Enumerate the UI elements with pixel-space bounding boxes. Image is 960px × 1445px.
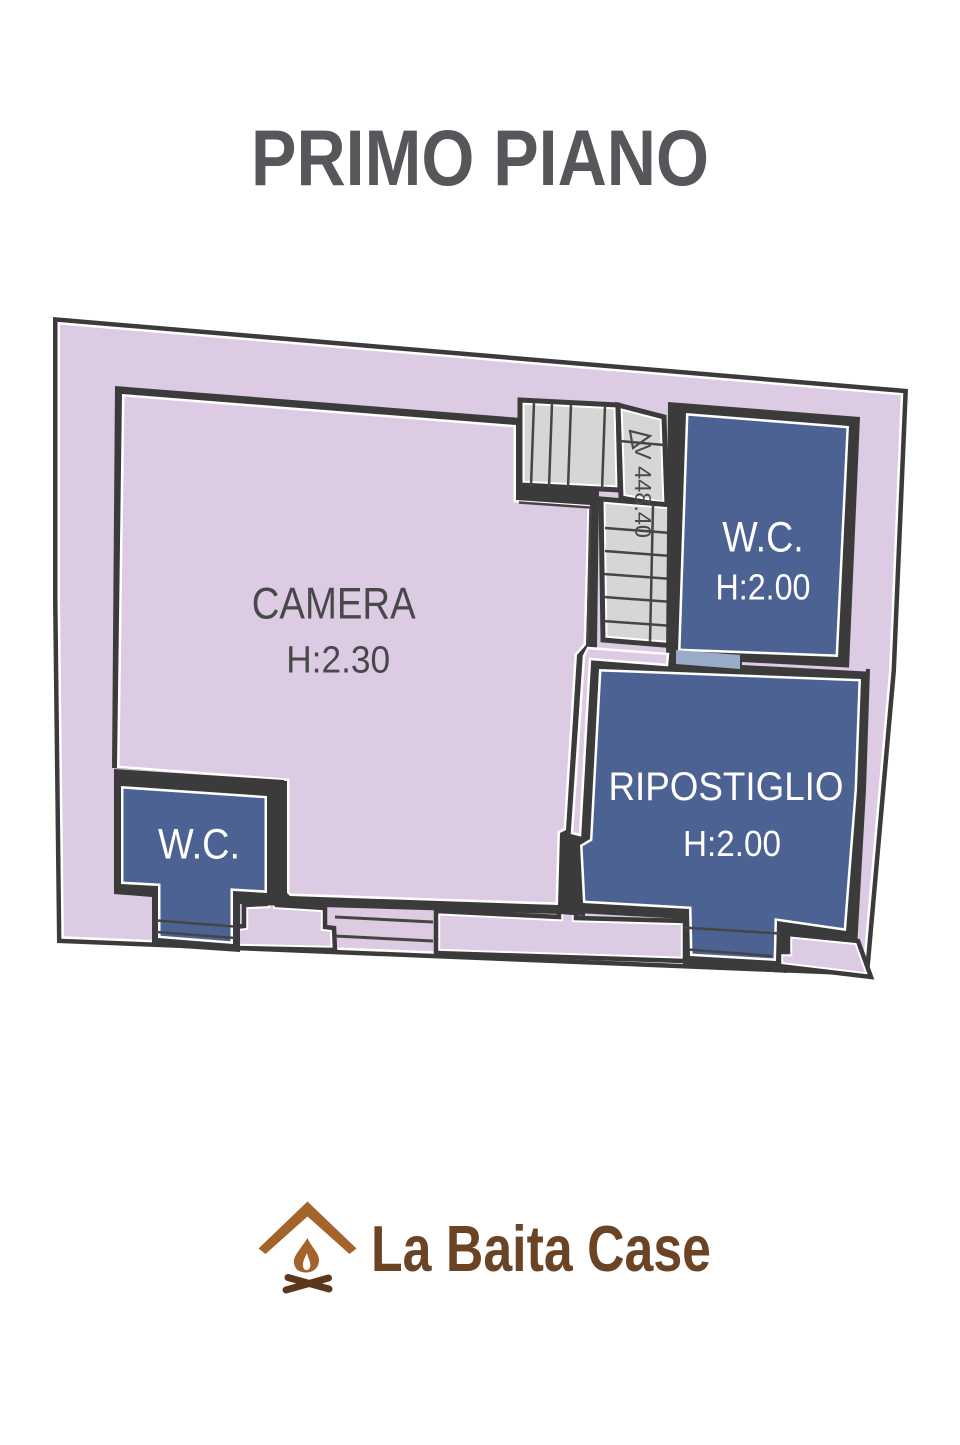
svg-text:La Baita Case: La Baita Case (371, 1212, 711, 1285)
svg-text:PRIMO PIANO: PRIMO PIANO (251, 113, 709, 202)
svg-text:H:2.30: H:2.30 (286, 640, 390, 682)
svg-text:W.C.: W.C. (722, 514, 804, 562)
svg-text:H:2.00: H:2.00 (716, 567, 811, 608)
svg-text:RIPOSTIGLIO: RIPOSTIGLIO (609, 765, 844, 809)
svg-text:CAMERA: CAMERA (252, 579, 416, 628)
svg-text:H:2.00: H:2.00 (683, 823, 781, 864)
svg-text:V 448.40: V 448.40 (630, 444, 656, 538)
svg-text:W.C.: W.C. (158, 822, 240, 869)
